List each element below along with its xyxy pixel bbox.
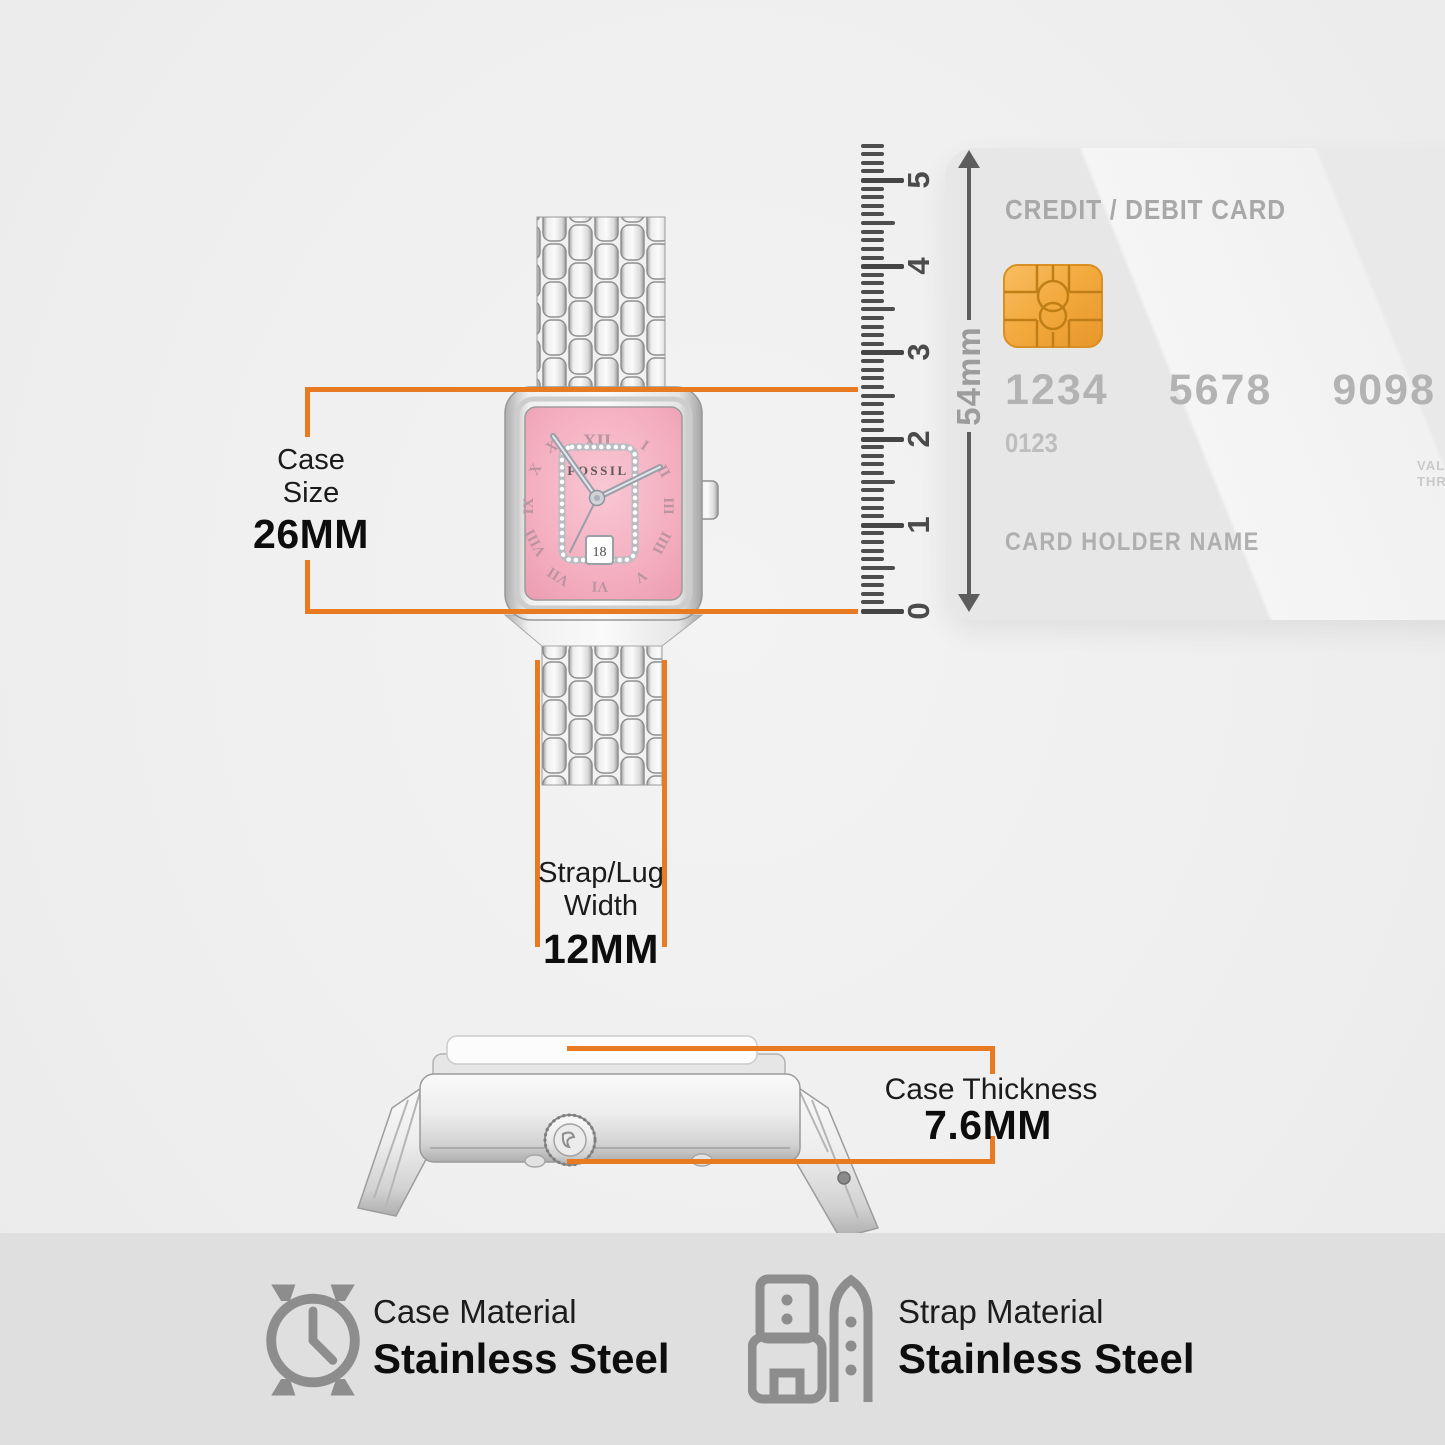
ruler-tick [861,549,884,553]
ruler-tick [861,368,884,372]
ruler-tick [861,566,895,570]
ruler-tick [861,557,884,561]
ruler-tick [861,195,884,199]
ruler-tick [861,454,884,458]
ruler-tick [861,316,884,320]
ruler-tick [861,480,895,484]
ruler-tick [861,342,884,346]
card-holder-name: CARD HOLDER NAME [1005,528,1294,557]
strap-width-line-left [535,660,540,947]
card-title: CREDIT / DEBIT CARD [1005,194,1324,226]
ruler-number: 3 [901,334,937,370]
case-material-label: Case Material [373,1293,669,1331]
card-valid-thru: VALID THRU [1417,458,1445,490]
ruler-tick [861,307,895,311]
side-foot-left [525,1155,545,1167]
ruler-tick [861,411,884,415]
ruler-tick [861,419,884,423]
ruler-number: 0 [901,593,937,629]
ruler-tick [861,376,884,380]
ruler-number: 2 [901,421,937,457]
ruler-tick [861,204,884,208]
ruler-tick [861,437,904,442]
ruler-tick [861,161,884,165]
case-material-value: Stainless Steel [373,1335,669,1383]
ruler-tick [861,592,884,596]
ruler-tick [861,471,884,475]
card-height-line-top [967,166,971,320]
card-number-group-2: 5678 [1169,366,1273,415]
ruler-tick [861,402,884,406]
ruler-tick [861,256,884,260]
ruler-tick [861,169,884,173]
ruler-tick [861,152,884,156]
ruler-tick [861,299,884,303]
ruler-number: 4 [901,248,937,284]
valid-line-1: VALID [1417,458,1445,474]
case-thickness-value: 7.6MM [924,1102,1052,1149]
card-height-line-bottom [967,432,971,594]
case-size-line-top [305,387,858,392]
ruler-tick [861,531,884,535]
case-size-bracket-stub-bottom [305,560,310,614]
ruler-tick [861,212,884,216]
ruler-tick [861,394,895,398]
ruler-number: 1 [901,507,937,543]
ruler-tick [861,187,884,191]
ruler-tick [861,333,884,337]
ruler-tick [861,359,884,363]
credit-card: CREDIT / DEBIT CARD 1234 5678 9098 0123 … [945,148,1445,620]
arrow-down-icon [958,594,980,612]
strap-width-label-2: Width [564,891,638,922]
ruler-tick [861,575,884,579]
ruler-tick [861,281,884,285]
strap-width-label-1: Strap/Lug [538,858,664,889]
strap-width-line-right [662,660,667,947]
thickness-stub-top [990,1046,995,1074]
ruler-tick [861,273,884,277]
ruler-tick [861,350,904,355]
card-height-label: 54mm [950,326,988,425]
ruler-tick [861,488,884,492]
case-size-value: 26MM [253,511,369,558]
bracelet-upper [537,217,665,391]
card-number: 1234 5678 9098 [1005,366,1436,415]
strap-material-value: Stainless Steel [898,1335,1194,1383]
ruler-tick [861,609,904,614]
ruler-tick [861,230,884,234]
ruler-tick [861,583,884,587]
watch-strap-icon [748,1273,883,1405]
ruler-tick [861,144,884,148]
materials-band: Case Material Stainless Steel Strap Mate… [0,1233,1445,1445]
case-material-text: Case Material Stainless Steel [373,1293,669,1383]
ruler-tick [861,462,884,466]
date-value: 18 [593,545,607,560]
ruler-tick [861,506,884,510]
strap-material-text: Strap Material Stainless Steel [898,1293,1194,1383]
watch-case-icon [258,1281,368,1399]
case-thickness-label: Case Thickness [885,1074,1098,1105]
strap-material-label: Strap Material [898,1293,1194,1331]
product-infographic: XII I II III IIII V VI VII VIII IX X XI … [0,0,1445,1445]
case-size-line-bottom [305,609,858,614]
watch-front-view: XII I II III IIII V VI VII VIII IX X XI … [490,205,730,805]
numeral-9: IX [521,497,537,514]
ruler-tick [861,428,884,432]
side-bracelet-pin [838,1172,850,1184]
numeral-3: III [660,497,676,515]
ruler-tick [861,540,884,544]
watch-side-view [330,1030,1020,1245]
ruler-tick [861,523,904,528]
side-crown [545,1115,595,1165]
valid-line-2: THRU [1417,474,1445,490]
card-chip-icon [1003,264,1103,348]
ruler-tick [861,247,884,251]
ruler-tick [861,290,884,294]
ruler-tick [861,445,884,449]
ruler-tick [861,238,884,242]
bracelet-lower [542,643,662,785]
ruler-tick [861,264,904,269]
ruler-tick [861,514,884,518]
ruler-tick [861,221,895,225]
ruler-tick [861,178,904,183]
numeral-6: VI [591,578,608,595]
ruler-tick [861,497,884,501]
card-number-group-1: 1234 [1005,366,1109,415]
ruler-tick [861,325,884,329]
thickness-line-bottom [567,1159,995,1164]
ruler-tick [861,385,884,389]
card-sub-number: 0123 [1005,428,1065,459]
card-number-group-3: 9098 [1332,366,1436,415]
case-size-label-2: Size [283,478,339,509]
thickness-line-top [567,1046,995,1051]
case-size-label-1: Case [277,445,345,476]
strap-width-value: 12MM [543,926,659,973]
ruler-number: 5 [901,162,937,198]
case-size-bracket-stub-top [305,387,310,437]
ruler-tick [861,600,884,604]
